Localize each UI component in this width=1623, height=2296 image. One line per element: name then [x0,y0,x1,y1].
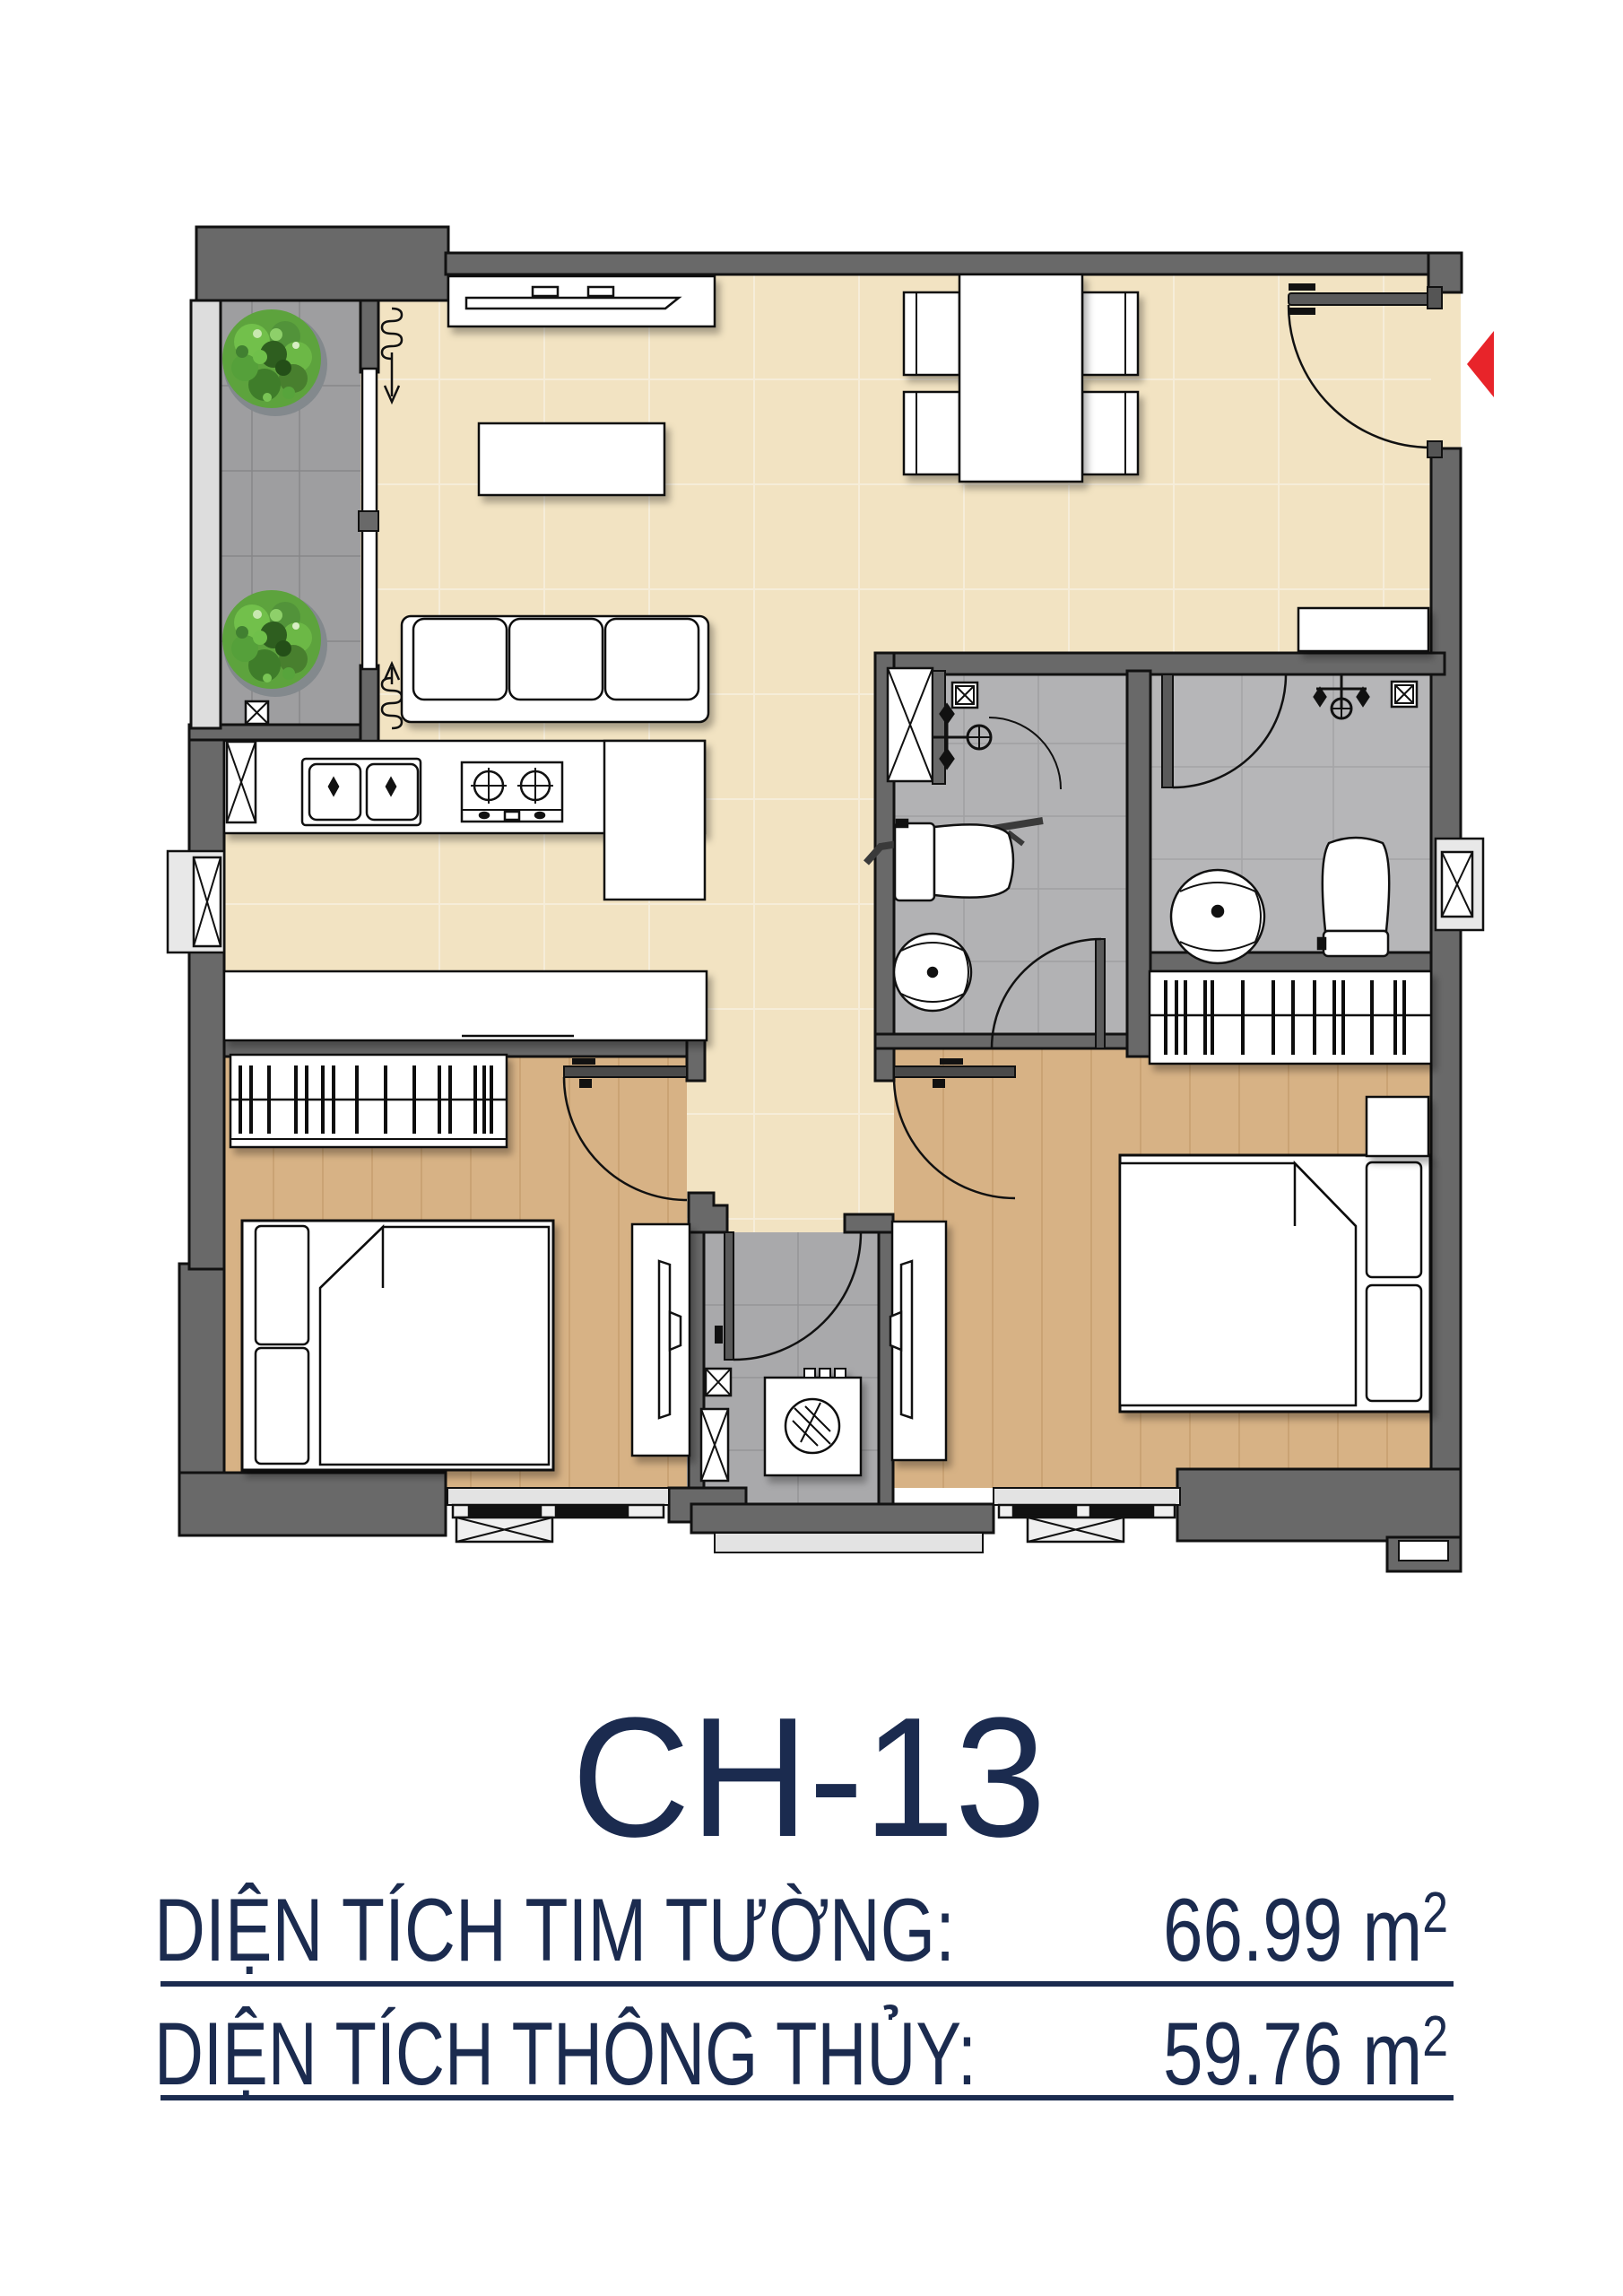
svg-text:66.99 m2: 66.99 m2 [1163,1880,1448,1979]
svg-text:DIỆN TÍCH TIM TƯỜNG:: DIỆN TÍCH TIM TƯỜNG: [154,1880,955,1979]
svg-text:59.76 m2: 59.76 m2 [1163,2004,1448,2103]
svg-text:DIỆN TÍCH THÔNG THỦY:: DIỆN TÍCH THÔNG THỦY: [154,2004,976,2103]
svg-text:CH-13: CH-13 [572,1683,1046,1873]
